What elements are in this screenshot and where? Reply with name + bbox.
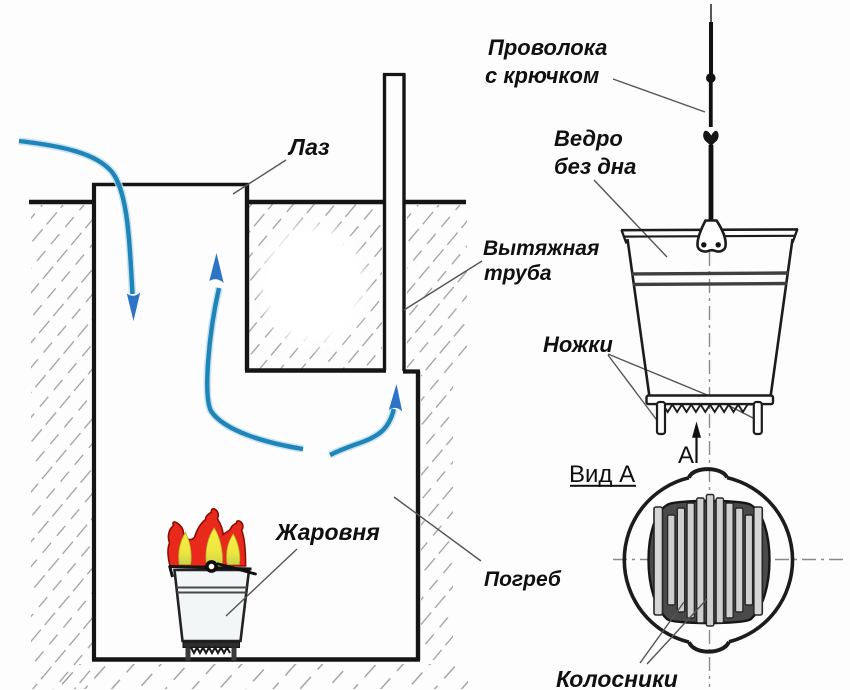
svg-text:А: А xyxy=(678,442,694,469)
svg-text:труба: труба xyxy=(484,262,552,285)
svg-text:Колосники: Колосники xyxy=(556,666,678,690)
svg-text:Погреб: Погреб xyxy=(484,568,562,591)
svg-text:с крючком: с крючком xyxy=(485,63,599,88)
svg-text:Проволока: Проволока xyxy=(488,35,607,60)
svg-text:Ведро: Ведро xyxy=(554,126,623,151)
svg-text:Жаровня: Жаровня xyxy=(275,519,380,545)
svg-text:без дна: без дна xyxy=(554,154,636,179)
svg-text:Лаз: Лаз xyxy=(287,134,330,160)
svg-text:Ножки: Ножки xyxy=(543,332,613,357)
svg-text:Вытяжная: Вытяжная xyxy=(483,237,599,260)
svg-text:Вид А: Вид А xyxy=(569,461,635,488)
